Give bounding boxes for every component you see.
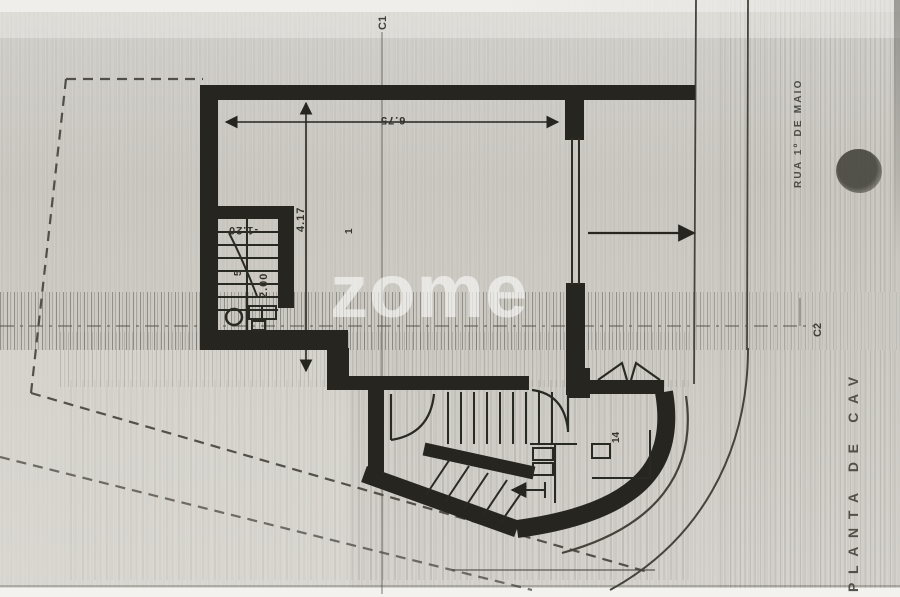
- street-name-label: RUA 1º DE MAIO: [793, 78, 804, 188]
- zome-watermark: zome: [330, 248, 528, 335]
- grid-axis-label-c1: C1: [377, 16, 389, 30]
- room-number-14: 14: [611, 432, 622, 443]
- scanned-floor-plan-page: C1 C2 6.75 4.17 2.00 -1.20 1 5 14 RUA 1º…: [0, 0, 900, 597]
- level-label-minus-120: -1.20: [228, 224, 258, 236]
- dimension-label-depth: 4.17: [295, 207, 307, 232]
- thick-walls-diagonal-curved: [364, 392, 666, 529]
- grid-axis-label-c2: C2: [812, 323, 824, 337]
- window-glazing: [572, 138, 579, 285]
- room-number-5: 5: [233, 270, 244, 276]
- plan-title-label: PLANTA DE CAV: [845, 368, 861, 592]
- dimension-label-width: 6.75: [380, 114, 405, 126]
- room-number-1: 1: [344, 228, 355, 234]
- dimension-label-stair-width: 2.00: [258, 273, 270, 298]
